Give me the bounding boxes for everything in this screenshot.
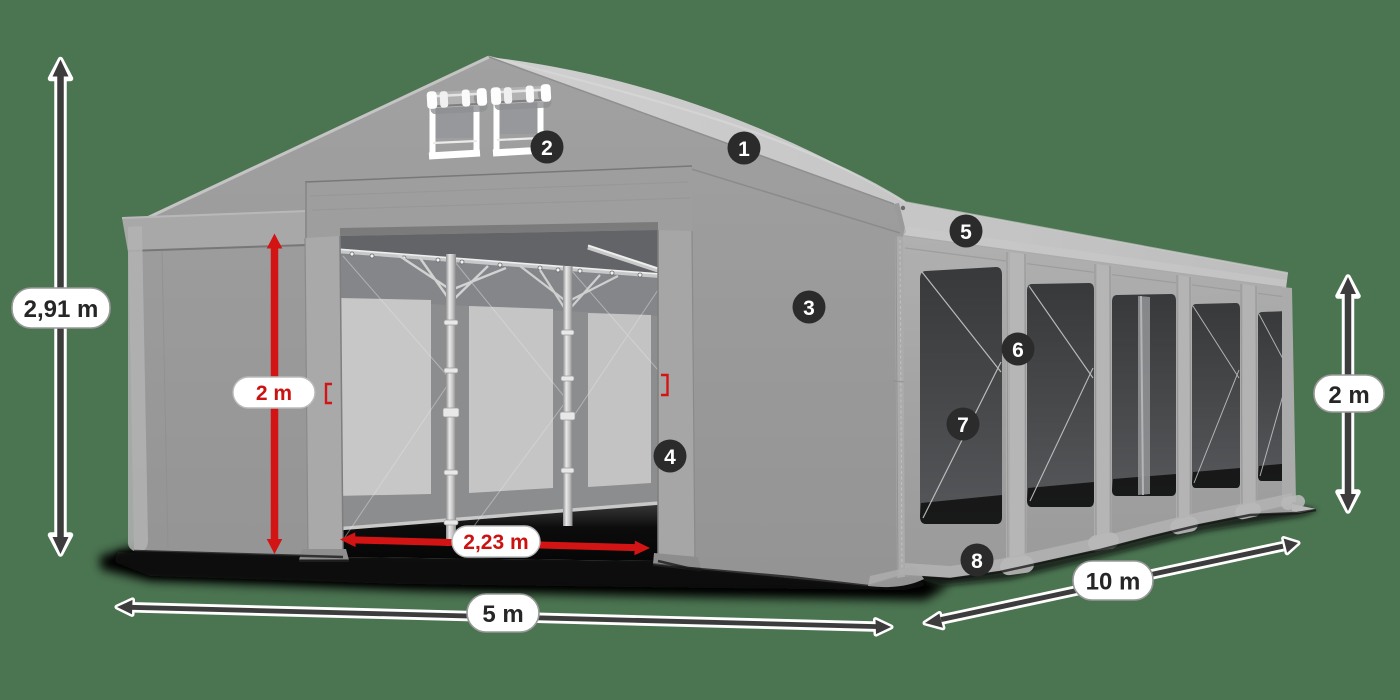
svg-text:5 m: 5 m (482, 601, 523, 628)
svg-text:8: 8 (971, 550, 983, 573)
svg-text:7: 7 (957, 414, 969, 437)
svg-text:5: 5 (960, 221, 972, 244)
svg-text:2: 2 (541, 137, 553, 160)
svg-text:2 m: 2 m (1328, 382, 1369, 409)
svg-text:2,23 m: 2,23 m (463, 531, 528, 554)
svg-text:1: 1 (738, 138, 750, 161)
svg-text:3: 3 (803, 297, 815, 320)
svg-text:10 m: 10 m (1086, 569, 1141, 596)
svg-text:4: 4 (664, 446, 676, 469)
svg-text:2,91 m: 2,91 m (24, 296, 99, 323)
svg-text:6: 6 (1012, 339, 1024, 362)
svg-text:2 m: 2 m (256, 382, 292, 405)
